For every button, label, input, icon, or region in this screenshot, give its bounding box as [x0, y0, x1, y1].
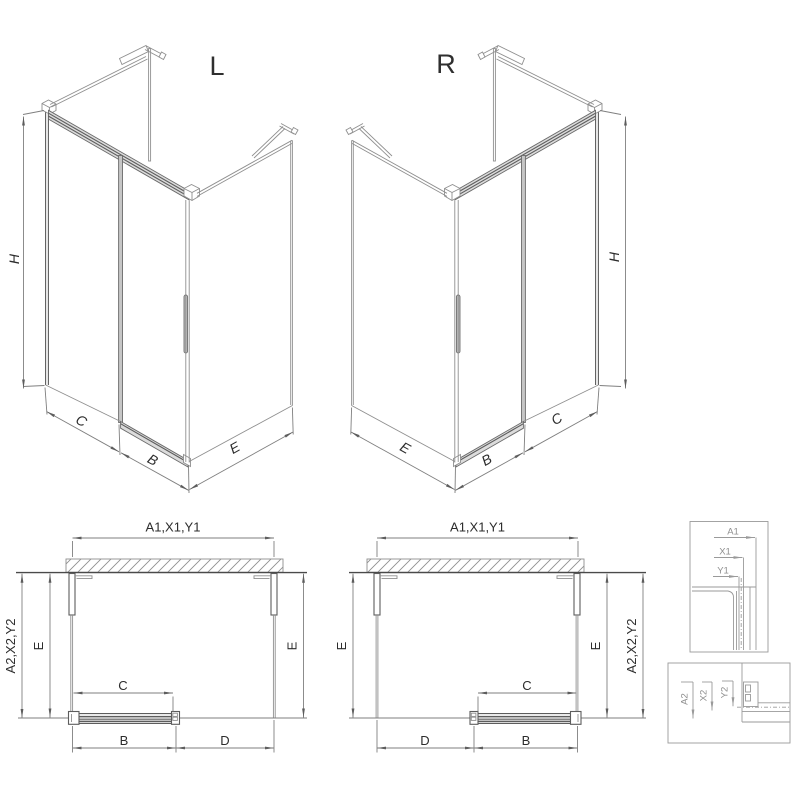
- sliding-door: [119, 156, 188, 423]
- wall-brackets: [69, 574, 277, 616]
- detail-label-y1: Y1: [717, 566, 729, 577]
- rail-section: [737, 663, 790, 722]
- dim-label-a2-right: A2,X2,Y2: [624, 619, 639, 674]
- dim-label-a2-left: A2,X2,Y2: [3, 619, 18, 674]
- detail-label-a2: A2: [680, 693, 691, 705]
- wall-section: [349, 559, 646, 573]
- dim-label-e-left: E: [227, 438, 244, 457]
- bottom-rail: [46, 385, 191, 467]
- dim-label-b-left: B: [145, 450, 161, 469]
- dim-label-c-plan-right: C: [522, 678, 531, 693]
- dim-label-e-inner-right: E: [588, 641, 603, 650]
- dim-label-a1-right: A1,X1,Y1: [450, 520, 505, 535]
- wall-brackets: [374, 574, 580, 616]
- dim-label-h-left: H: [6, 253, 22, 264]
- dim-label-e-inner-left: E: [31, 641, 46, 650]
- technical-drawing-page: L: [0, 0, 800, 800]
- detail-label-a1: A1: [727, 527, 739, 538]
- wall-profile: [42, 100, 56, 385]
- shower-enclosure-drawing: L: [0, 0, 800, 800]
- wall-section: [16, 559, 307, 573]
- dimension-h: H: [6, 111, 45, 389]
- dimension-h: H: [600, 111, 626, 389]
- dimension-a1: A1,X1,Y1: [377, 520, 578, 558]
- dim-label-h-right: H: [606, 251, 622, 262]
- dim-label-a1-left: A1,X1,Y1: [146, 520, 201, 535]
- dim-label-e-right: E: [397, 438, 414, 457]
- bottom-rail: [454, 385, 599, 467]
- dimension-c: C: [74, 678, 174, 712]
- detail-dimensions: A2 X2 Y2: [680, 681, 734, 719]
- plan-view-l: A1,X1,Y1: [3, 520, 307, 753]
- dimension-e-right: E: [285, 574, 304, 718]
- side-panel: [189, 124, 298, 462]
- side-panel: [346, 124, 455, 462]
- detail-label-y2: Y2: [720, 687, 731, 699]
- ceiling-support: [478, 46, 594, 162]
- dimension-c: C: [478, 678, 577, 712]
- dim-label-e-inner-right: E: [285, 641, 300, 650]
- dim-label-b-plan-right: B: [522, 733, 531, 748]
- dimension-e: E: [351, 408, 455, 490]
- dim-label-b-plan-left: B: [120, 733, 129, 748]
- dim-label-d-plan-left: D: [220, 733, 229, 748]
- detail-box-top: A1 X1 Y1: [690, 522, 768, 653]
- dimension-a1: A1,X1,Y1: [73, 520, 275, 558]
- dimension-e: E: [190, 408, 294, 490]
- dim-label-c-plan-left: C: [118, 678, 127, 693]
- wall-profile: [588, 100, 602, 385]
- detail-label-x1: X1: [719, 547, 731, 558]
- dimension-c: C: [524, 388, 599, 456]
- dimension-e-left: E: [31, 574, 50, 718]
- dimension-b-d: D B: [377, 720, 578, 753]
- detail-box-bottom: A2 X2 Y2: [668, 663, 790, 743]
- dimension-e-left: E: [334, 574, 353, 718]
- dim-label-e-inner-left: E: [334, 641, 349, 650]
- dim-label-c-right: C: [548, 409, 565, 428]
- dimension-c: C: [45, 388, 120, 456]
- iso-view-l: L: [6, 46, 298, 494]
- ceiling-support: [50, 46, 166, 162]
- iso-view-r: R: [346, 46, 626, 494]
- plan-view-r: A1,X1,Y1: [334, 520, 646, 753]
- dimension-e-right: E: [588, 574, 607, 718]
- dim-label-b-right: B: [479, 450, 495, 469]
- dim-label-d-plan-right: D: [420, 733, 429, 748]
- glass-panels: [376, 615, 578, 718]
- dimension-b-d: B D: [73, 720, 275, 753]
- detail-label-x2: X2: [699, 690, 710, 702]
- variant-label-r: R: [436, 49, 456, 79]
- dimension-a2: A2,X2,Y2: [624, 574, 643, 718]
- dimension-a2: A2,X2,Y2: [3, 574, 22, 718]
- variant-label-l: L: [209, 51, 224, 81]
- sliding-door: [456, 156, 525, 423]
